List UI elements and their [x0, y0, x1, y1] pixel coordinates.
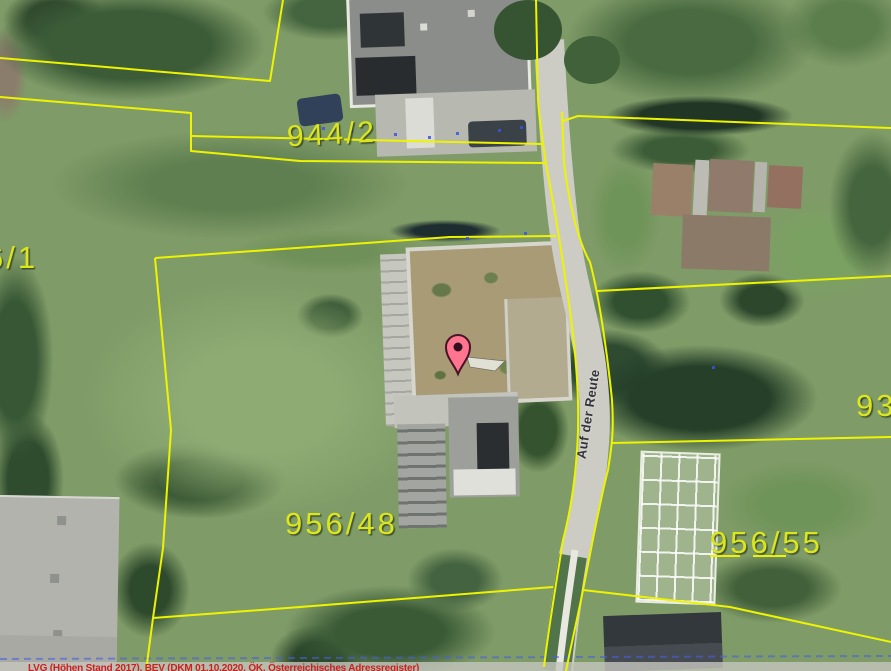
- parcel-label-944-2: 944/2: [286, 118, 378, 153]
- boundary-line: [0, 97, 546, 163]
- boundary-line: [583, 590, 891, 642]
- boundary-line: [153, 587, 553, 618]
- parcel-label-956-55: 956/55: [710, 527, 823, 558]
- map-canvas[interactable]: 6/1 944/2 956/48 956/55 93 Auf der Reute…: [0, 0, 891, 671]
- parcel-label-956-48: 956/48: [285, 508, 398, 539]
- boundary-lines: [0, 0, 891, 671]
- boundary-line: [597, 276, 891, 291]
- attribution: LVG (Höhen Stand 2017), BEV (DKM 01.10.2…: [28, 663, 419, 671]
- boundary-line: [146, 258, 171, 671]
- boundary-line: [611, 437, 891, 443]
- pin-icon: [446, 335, 470, 374]
- parcel-label-6-1: 6/1: [0, 242, 38, 273]
- blue-boundary-line: [0, 656, 891, 659]
- boundary-line: [155, 236, 556, 258]
- map-overlay: [0, 0, 891, 671]
- boundary-line: [0, 0, 283, 81]
- location-pin[interactable]: [446, 335, 505, 374]
- road: [494, 0, 620, 671]
- pin-dot: [454, 343, 463, 352]
- parcel-label-93: 93: [856, 390, 891, 421]
- pin-shadow: [467, 357, 505, 371]
- tree-overhang: [494, 0, 562, 60]
- boundary-line: [563, 116, 891, 128]
- tree-overhang: [564, 36, 620, 84]
